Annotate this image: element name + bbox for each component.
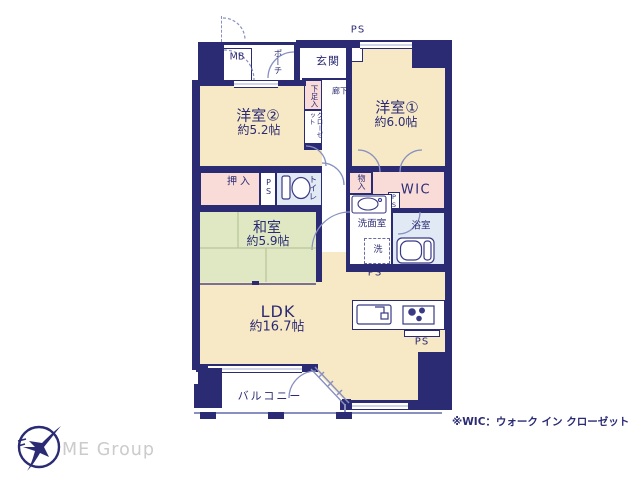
dashed-common-area — [221, 16, 224, 42]
label-bathroom: 浴室 — [411, 222, 430, 233]
balcony-tick — [268, 412, 284, 419]
hallway-floor — [322, 80, 348, 252]
room-area-japanese: 約5.9帖 — [246, 235, 289, 249]
label-washing-machine: 洗 — [373, 245, 382, 255]
label-storage: 物入 — [356, 174, 367, 190]
balcony-pillar — [194, 384, 222, 408]
label-washroom: 洗面室 — [358, 220, 387, 231]
label-meter-box: MB — [230, 53, 245, 64]
room-label-balcony: バルコニー — [238, 391, 303, 404]
wall — [346, 86, 352, 172]
logo-text: ME Group — [62, 440, 155, 460]
room-label-ldk: LDK — [261, 303, 296, 321]
wall — [222, 42, 296, 45]
room-label-western1: 洋室① — [375, 99, 418, 116]
window — [352, 402, 408, 410]
wall — [346, 166, 452, 172]
label-closet: クローゼット — [305, 112, 322, 142]
wall — [192, 80, 200, 370]
balcony-edge — [194, 412, 442, 414]
label-pipe-space-top: PS — [351, 24, 365, 36]
label-pipe-space-wic: PS — [390, 193, 398, 209]
floor-plan: 洋室① 約6.0帖 洋室② 約5.2帖 和室 約5.9帖 LDK 約16.7帖 … — [0, 0, 640, 480]
logo-bird-icon — [12, 420, 64, 474]
window — [360, 41, 412, 49]
label-porch: ポーチ — [271, 49, 283, 81]
wall — [346, 264, 452, 272]
balcony-tick — [336, 412, 352, 419]
label-shoe-cabinet: 下足入 — [309, 85, 320, 108]
label-pipe-space-hall: PS — [264, 178, 273, 196]
room-label-western2: 洋室② — [236, 107, 279, 124]
room-area-western1: 約6.0帖 — [374, 116, 417, 130]
label-futon-closet: 押入 — [227, 176, 253, 188]
label-toilet: トイレ — [306, 175, 318, 201]
label-wic: WIC — [401, 184, 431, 199]
wall — [304, 144, 322, 150]
balcony-tick — [200, 412, 216, 419]
window — [234, 80, 278, 88]
balcony-pillar — [198, 368, 222, 384]
label-entrance: 玄関 — [316, 56, 340, 69]
room-area-ldk: 約16.7帖 — [250, 321, 305, 336]
label-hallway: 廊下 — [332, 86, 348, 95]
wall — [445, 48, 452, 358]
wall — [200, 166, 322, 172]
label-pipe-space-bath: PS — [368, 267, 382, 279]
entrance-step-line — [302, 78, 346, 80]
wall — [346, 172, 350, 264]
kitchen-counter — [352, 300, 445, 330]
wall — [308, 364, 318, 372]
window — [208, 365, 302, 373]
wall — [346, 42, 352, 86]
wall — [392, 208, 452, 212]
room-area-western2: 約5.2帖 — [237, 124, 280, 138]
wall — [200, 206, 322, 212]
wall — [294, 44, 300, 84]
wall — [316, 212, 322, 282]
label-pipe-space-kitchen: PS — [415, 336, 429, 348]
wic-footnote: ※WIC：ウォーク イン クローゼット — [452, 414, 629, 429]
